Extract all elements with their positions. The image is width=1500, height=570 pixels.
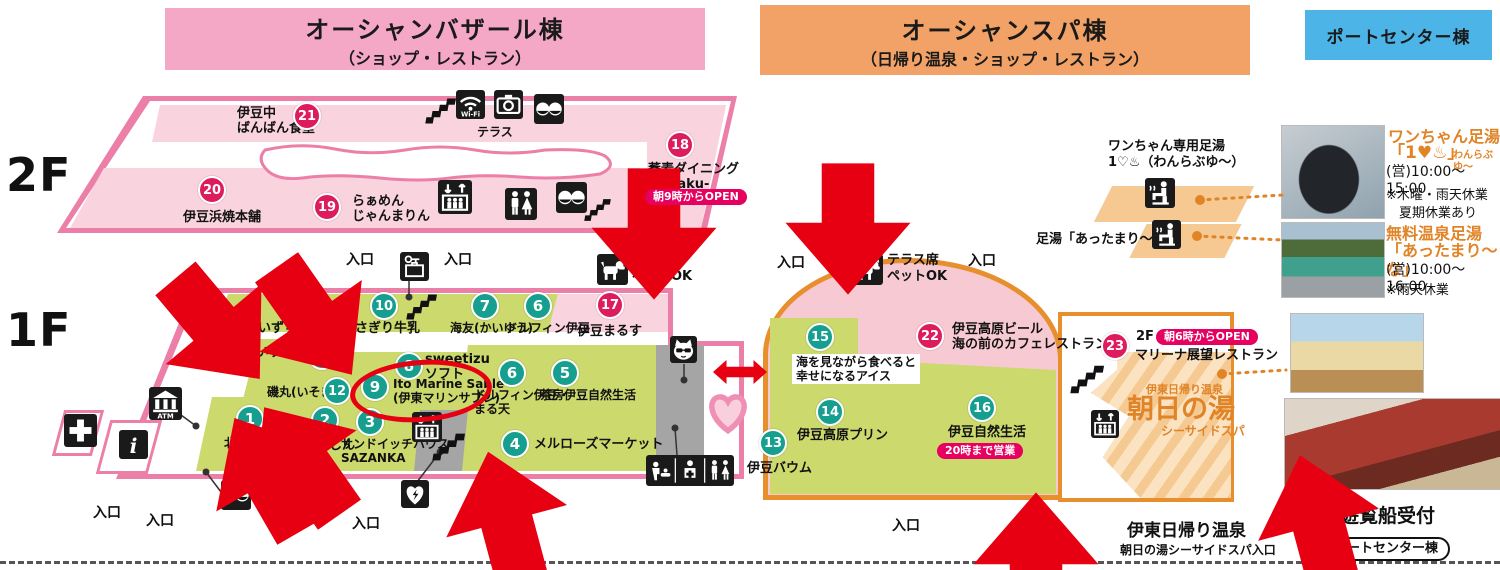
shop-marker-15: 15 [806, 323, 834, 351]
shop-label-22: 伊豆高原ビール 海の前のカフェレストラン [952, 322, 1108, 353]
shop-marker-20: 20 [198, 176, 226, 204]
dog-footbath-photo [1281, 125, 1385, 219]
shop-label-14: 伊豆高原プリン [797, 428, 888, 443]
entrance-arrow-icon [886, 483, 921, 518]
shop-label-15: 海を見ながら食べると 幸せになるアイス [792, 354, 920, 384]
spa-name-main: 朝日の湯 [1127, 394, 1235, 426]
glasses-icon [534, 94, 564, 124]
free-footbath-photo [1281, 222, 1385, 298]
entrance-arrow-icon [341, 472, 388, 519]
shop-marker-13: 13 [759, 429, 787, 457]
shop-marker-5: 5 [551, 359, 579, 387]
babycare-icon [646, 455, 734, 486]
spa-name-sub: シーサイドスパ [1161, 424, 1245, 438]
shop-marker-18: 18 [666, 131, 694, 159]
heartmon-icon [703, 387, 753, 437]
header-spa-title: オーシャンスパ棟 [760, 11, 1250, 46]
cat-icon [670, 336, 697, 363]
elevator-icon [438, 180, 472, 214]
shop-marker-21: 21 [293, 102, 321, 130]
dog-footbath-band-label: ワンちゃん専用足湯 1♡♨（わんらぶゆ〜） [1108, 139, 1244, 170]
floor-label-2f: 2F [6, 148, 71, 202]
camera-icon [494, 90, 523, 119]
header-bazaar-subtitle: （ショップ・レストラン） [165, 45, 705, 69]
entrance-arrow-icon [100, 471, 138, 509]
shop-marker-16: 16 [968, 394, 996, 422]
shop-prelabel-23: 2F [1136, 329, 1154, 344]
floor-label-1f: 1F [6, 303, 71, 357]
sidebar-dog-closed2: 夏期休業あり [1399, 206, 1477, 222]
sidebar-free-closed: ※雨天休業 [1386, 283, 1449, 299]
elevator-icon [1091, 410, 1119, 438]
entrance-arrow-icon [1446, 508, 1492, 554]
entrance-arrow-icon [971, 277, 998, 304]
wifi-icon [456, 90, 485, 119]
shop-marker-22: 22 [916, 322, 944, 350]
header-bazaar-title: オーシャンバザール棟 [165, 10, 705, 45]
shop-label-17: 伊豆まるす [577, 324, 642, 339]
shop-marker-6b: 6 [498, 359, 526, 387]
stairs-icon [1067, 363, 1106, 396]
header-port-title: ポートセンター棟 [1305, 23, 1492, 48]
firstaid-icon [64, 414, 97, 447]
stairs-icon [422, 96, 457, 126]
shop-badge-16: 20時まで営業 [937, 443, 1023, 459]
shop-badge-18: 朝9時からOPEN [645, 189, 747, 205]
header-spa-subtitle: （日帰り温泉・ショップ・レストラン） [760, 46, 1250, 70]
footbath-icon [1152, 220, 1181, 249]
marina-floor-map: オーシャンバザール棟 （ショップ・レストラン） オーシャンスパ棟 （日帰り温泉・… [0, 0, 1500, 570]
terrace-label: テラス [477, 125, 513, 139]
shop-label-16: 伊豆自然生活 [948, 425, 1026, 440]
header-port: ポートセンター棟 [1305, 10, 1492, 60]
shop-marker-14: 14 [816, 398, 844, 426]
shop-label-13: 伊豆バウム [747, 461, 812, 476]
footbath-icon [1145, 178, 1175, 208]
shop-badge-23: 朝6時からOPEN [1156, 329, 1258, 345]
header-bazaar: オーシャンバザール棟 （ショップ・レストラン） [165, 8, 705, 70]
dblarrow-icon [712, 357, 768, 387]
shop-label-5: 茶房伊豆自然生活 [540, 388, 636, 402]
sidebar-dog-closed1: ※木曜・雨天休業 [1386, 188, 1488, 204]
header-spa: オーシャンスパ棟 （日帰り温泉・ショップ・レストラン） [760, 5, 1250, 75]
shop-label-23: マリーナ展望レストラン [1135, 348, 1278, 363]
spa-building-photo [1290, 313, 1424, 393]
shop-marker-23: 23 [1101, 332, 1129, 360]
